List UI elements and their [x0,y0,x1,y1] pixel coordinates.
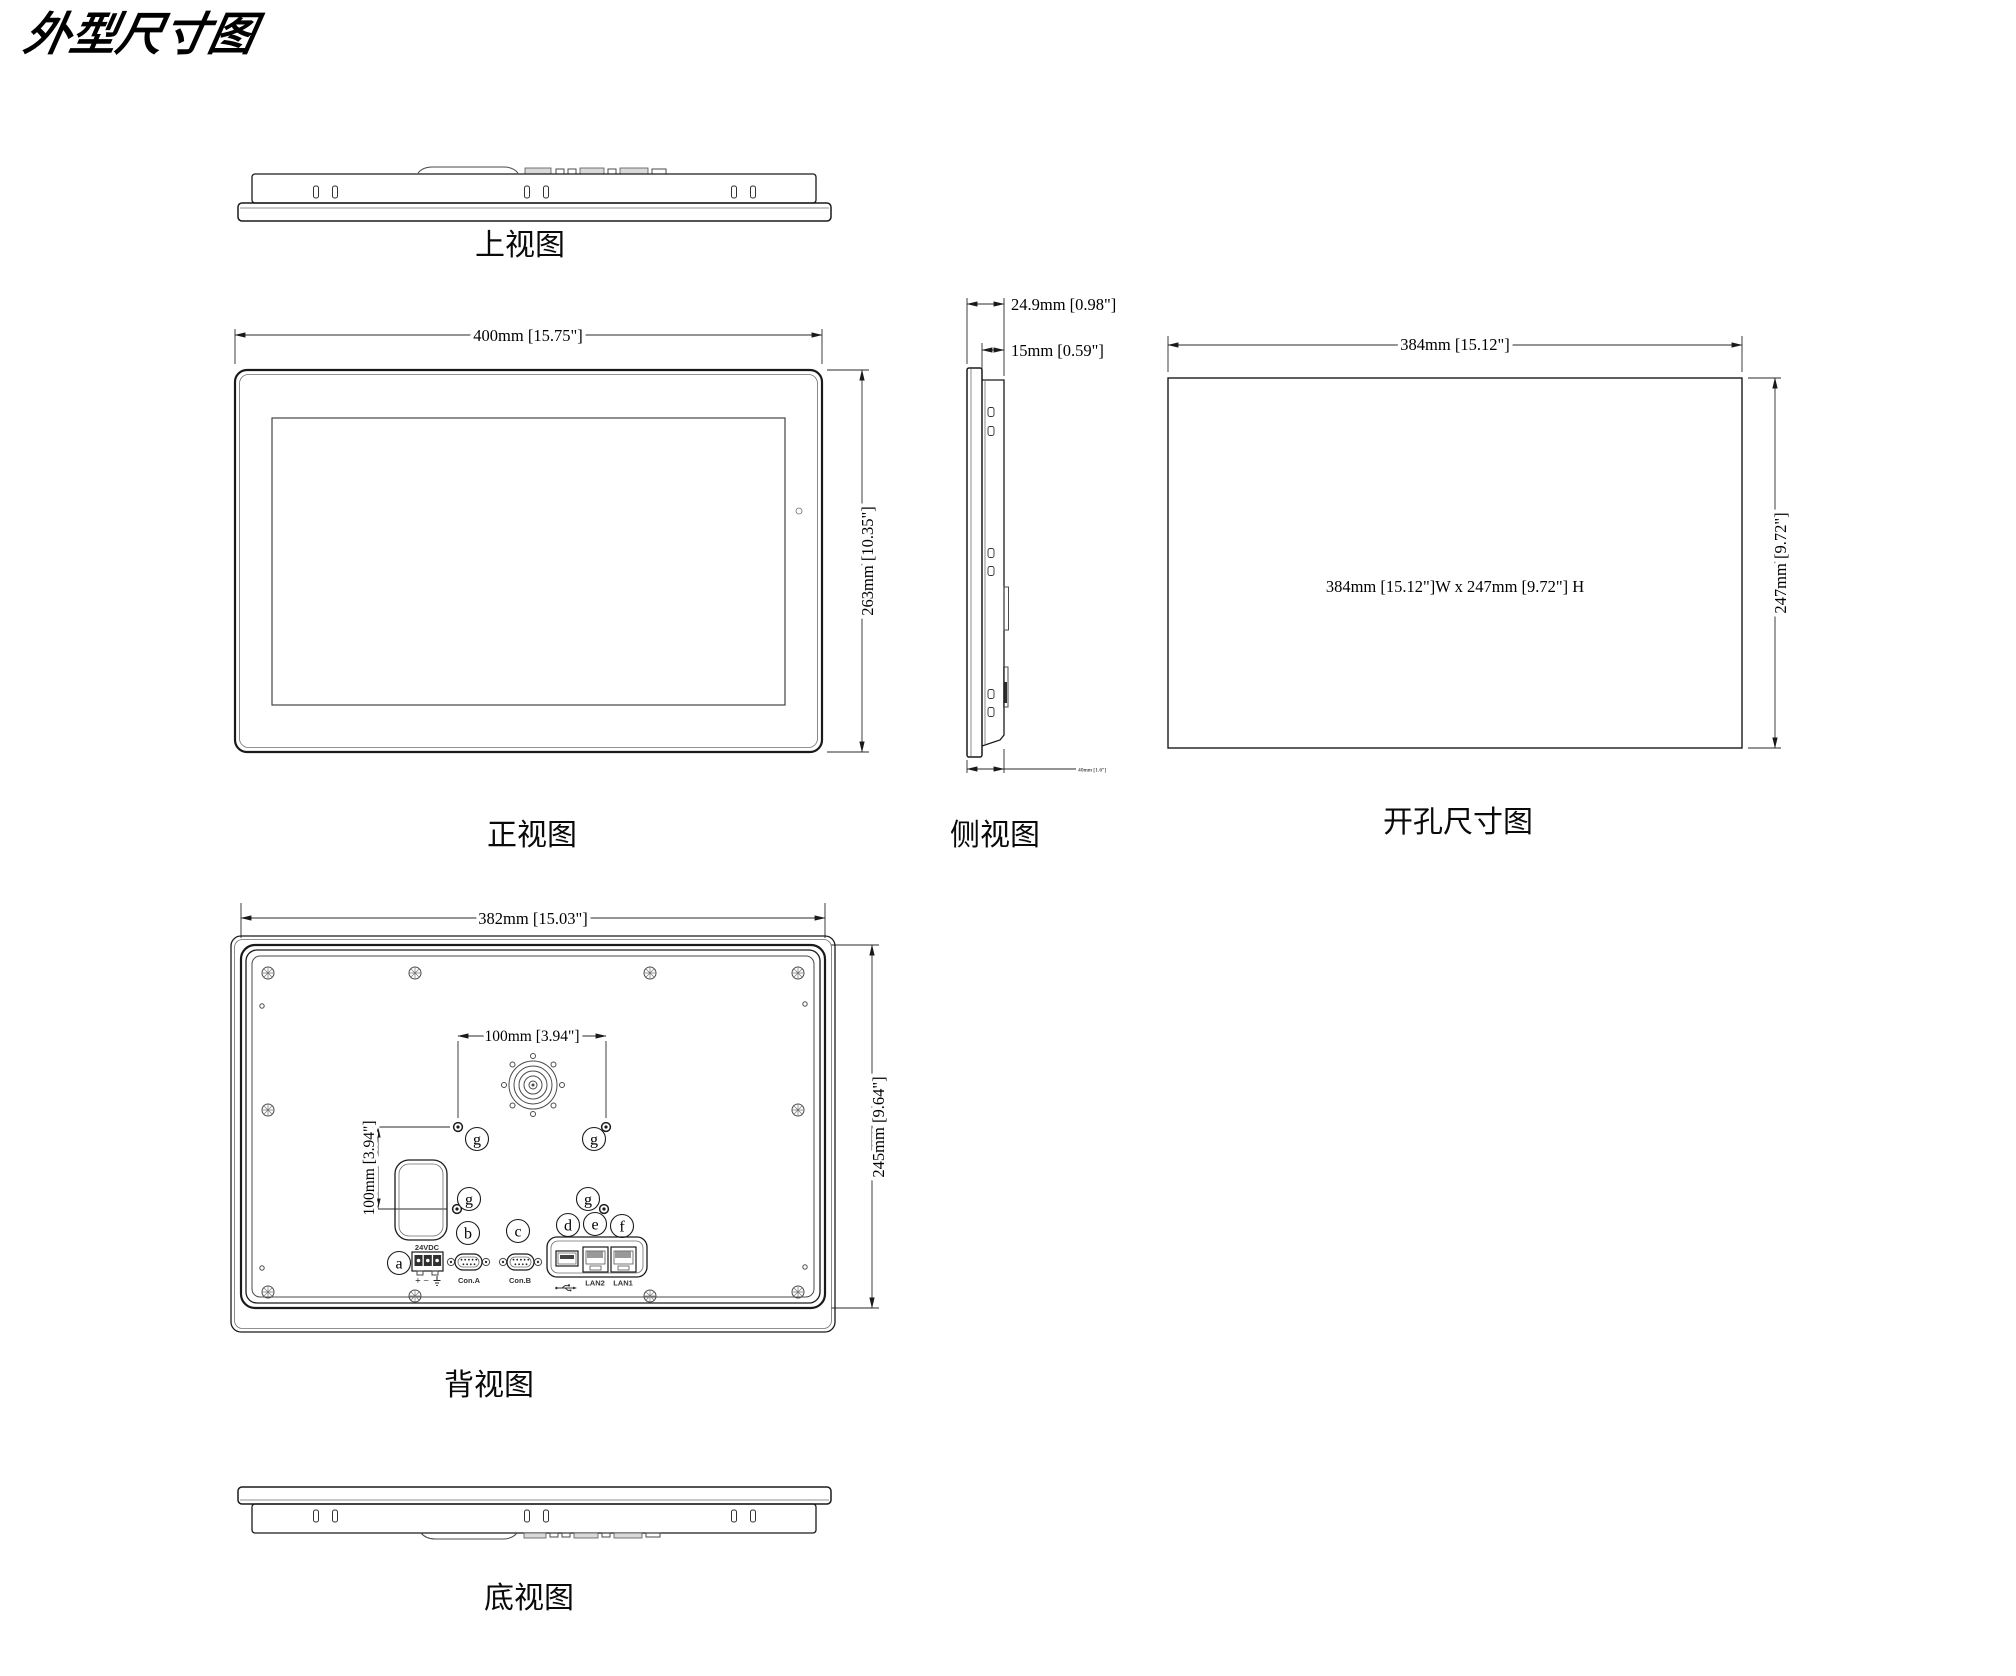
db9-body [455,1254,482,1270]
vesa-hole [454,1123,463,1132]
dim-text-245mm: 245mm [9.64"] [869,1076,888,1177]
vent-slot [988,549,994,558]
rj45-lan1-port [611,1247,636,1272]
svg-text:g: g [473,1132,481,1149]
rear-bump [1004,587,1009,630]
rear-panel [252,956,814,1297]
vent-slot [544,1510,549,1522]
svg-text:d: d [564,1218,572,1235]
front-view-label: 正视图 [487,819,577,852]
svg-text:c: c [514,1224,521,1241]
display-screen [272,418,785,705]
front-bezel-inner-line [240,375,818,748]
top-view-label: 上视图 [475,229,565,262]
side-view-label: 侧视图 [950,819,1040,852]
lan2-label: LAN2 [585,1279,605,1288]
usb-port [556,1251,578,1266]
svg-text:a: a [395,1256,402,1273]
dim-text-382mm: 382mm [15.03"] [478,909,587,928]
pin-hole [803,1002,807,1006]
connector-bump [418,167,518,173]
dim-text-vesa-h: 100mm [3.94"] [484,1028,579,1045]
dim-text-15mm: 15mm [0.59"] [1011,341,1104,360]
callout-g: g [583,1128,606,1151]
back-view: 382mm [15.03"] 245mm [9.64"] [231,903,888,1402]
vent-slot [314,1510,319,1522]
vent-slot [333,1510,338,1522]
dim-mount-depth: 40mm [1.6"] [967,749,1106,774]
rear-bump-dark [1005,682,1008,703]
callout-b: b [457,1222,480,1245]
svg-text:b: b [464,1226,472,1243]
svg-text:f: f [619,1219,625,1236]
vent-slots [314,186,756,198]
screw-icon [409,967,421,979]
drawing-page: 外型尺寸图 上视图 4 [0,0,2016,1676]
callout-g: g [458,1188,481,1211]
screw-icon [644,967,656,979]
dim-depth-24-9: 24.9mm [0.98"] [967,295,1116,376]
front-view: 400mm [15.75"] 263mm [10.35"] 正视图 [235,326,877,852]
connector-bump [608,169,616,174]
dim-text-384mm: 384mm [15.12"] [1400,335,1509,354]
vent-slot [333,186,338,198]
vent-slot [732,1510,737,1522]
connector-bump [614,1533,642,1538]
dim-bezel-15: 15mm [0.59"] [982,341,1104,376]
connector-bump [568,169,576,174]
dim-vesa-vertical: 100mm [3.94"] [361,1120,450,1215]
front-bezel-rim [231,936,835,1332]
svg-text:e: e [591,1217,598,1234]
connector-bump [652,169,666,174]
vent-slot [988,708,994,717]
front-bezel-profile [238,1487,831,1504]
side-vent-slots [988,408,994,717]
callout-g: g [466,1128,489,1151]
connector-bump [525,168,551,174]
dim-cutout-width: 384mm [15.12"] [1168,335,1742,372]
dim-text-263mm: 263mm [10.35"] [858,506,877,615]
screw-icon [262,1104,274,1116]
screw-icon [792,967,804,979]
db9-con-b: Con.B [499,1254,541,1285]
vent-slot [314,186,319,198]
connector-bump [556,169,564,174]
vent-slot [988,567,994,576]
connector-bump [574,1533,598,1538]
callout-f: f [611,1215,634,1238]
vent-slot [544,186,549,198]
cutout-rectangle [1168,378,1742,748]
vent-slot [988,408,994,417]
power-terminal-label: 24VDC [415,1243,440,1252]
dim-back-height: 245mm [9.64"] [831,945,888,1308]
dim-text-24-9mm: 24.9mm [0.98"] [1011,295,1116,314]
con-a-label: Con.A [458,1276,481,1285]
front-bezel-profile [238,203,831,221]
db9-con-a: Con.A [447,1254,489,1285]
rj45-lan2-port [583,1247,608,1272]
connector-bump [524,1533,546,1538]
screw-icon [262,967,274,979]
dim-width-400: 400mm [15.75"] [235,326,822,364]
vent-slot [525,186,530,198]
side-body [982,380,1009,746]
cutout-view-label: 开孔尺寸图 [1383,806,1533,839]
dim-height-263: 263mm [10.35"] [827,370,877,752]
db9-body [507,1254,534,1270]
vent-slot [525,1510,530,1522]
polarity-marks: + − [415,1276,429,1287]
pin-hole [260,1266,264,1270]
vent-slot [732,186,737,198]
svg-text:g: g [584,1192,592,1209]
vent-slot [751,1510,756,1522]
dim-cutout-height: 247mm [9.72"] [1748,378,1790,748]
connector-bump [620,168,648,174]
connector-bump [580,168,604,174]
bottom-view-label: 底视图 [484,1582,574,1615]
vesa-hole [602,1123,611,1132]
rear-shell-line2 [246,950,820,1303]
pin-hole [260,1004,264,1008]
io-port-group [547,1237,647,1277]
lan1-label: LAN1 [613,1279,633,1288]
dimension-drawing: 外型尺寸图 上视图 4 [0,0,2016,1676]
screw-icon [644,1290,656,1302]
pin-hole [803,1265,807,1269]
top-view-bumps [418,167,666,174]
dim-vesa-horizontal: 100mm [3.94"] [458,1028,606,1118]
top-view: 上视图 [238,167,831,262]
front-bezel-rim-inner [235,940,832,1329]
dim-text-vesa-v: 100mm [3.94"] [361,1120,378,1215]
back-view-label: 背视图 [444,1369,534,1402]
callout-c: c [507,1220,530,1243]
side-view: 24.9mm [0.98"] 15mm [0.59"] [950,295,1116,852]
con-b-label: Con.B [509,1276,532,1285]
vent-slot [751,186,756,198]
vent-slot [988,690,994,699]
power-terminal: 24VDC + − [412,1243,443,1287]
boss-outline [395,1160,447,1240]
cutout-view: 384mm [15.12"] 247mm [9.72"] 384mm [15.1… [1168,335,1790,839]
bottom-view: 底视图 [238,1487,831,1615]
bottom-bumps [421,1533,660,1539]
usb-icon [555,1284,577,1291]
mount-boss [395,1160,447,1240]
dim-back-width: 382mm [15.03"] [241,903,825,938]
screw-icon [792,1286,804,1298]
boss-inner-line [399,1164,443,1236]
callout-g: g [577,1188,600,1211]
ground-icon [434,1276,441,1286]
vent-slot [988,427,994,436]
screw-icon [262,1286,274,1298]
svg-text:g: g [590,1132,598,1149]
screw-icon [792,1104,804,1116]
callout-e: e [584,1213,607,1236]
front-bezel-outline [235,370,822,752]
callout-a: a [388,1252,411,1275]
panel-screws [260,967,807,1302]
cutout-note: 384mm [15.12"]W x 247mm [9.72"] H [1326,577,1584,596]
svg-text:g: g [465,1192,473,1209]
connector-bump [421,1533,517,1539]
side-bezel-profile [967,368,982,757]
dim-text-247mm: 247mm [9.72"] [1771,512,1790,613]
power-led [796,508,802,514]
vesa-hole [600,1205,609,1214]
page-title: 外型尺寸图 [20,10,266,61]
speaker-grille [502,1054,565,1117]
screw-icon [409,1290,421,1302]
vent-slots [314,1510,756,1522]
title-text: 外型尺寸图 [20,10,266,61]
rear-shell-outline [241,945,825,1308]
dim-text-mount: 40mm [1.6"] [1078,768,1106,774]
callout-d: d [557,1214,580,1237]
dim-text-400mm: 400mm [15.75"] [473,326,582,345]
